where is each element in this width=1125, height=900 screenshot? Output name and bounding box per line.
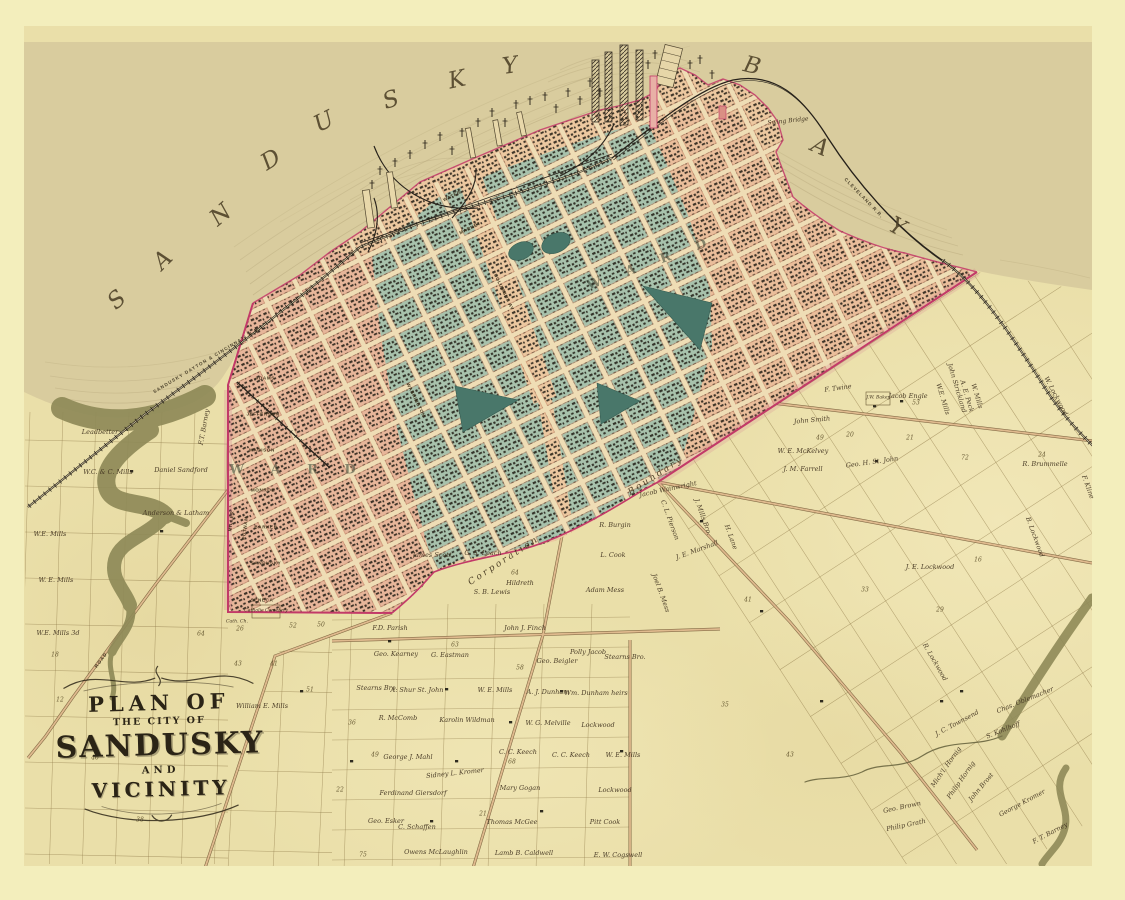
cartouche-flourish-bottom <box>56 798 267 831</box>
sandusky-map: SANDUSKYBAYCorporationBoundarySANDUSKY D… <box>0 0 1125 900</box>
cartouche-line-sandusky: SANDUSKY <box>38 725 283 766</box>
title-cartouche: PLAN OF THE CITY OF SANDUSKY AND VICINIT… <box>36 659 284 832</box>
